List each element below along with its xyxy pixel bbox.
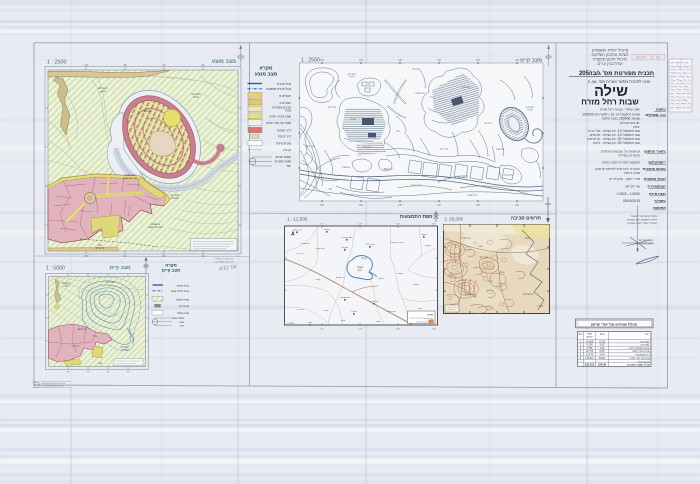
svg-text:יעוד: יעוד — [180, 325, 184, 328]
svg-text:המועצה אזורית מטה בנימין: המועצה אזורית מטה בנימין — [602, 161, 640, 165]
svg-text:שטח חקלאי: שטח חקלאי — [176, 297, 189, 301]
svg-text:עין סאמיה: עין סאמיה — [465, 294, 475, 296]
svg-text:מס': מס' — [579, 333, 583, 336]
svg-text:אל עוג'א: אל עוג'א — [496, 148, 505, 151]
svg-text:גובה: גובה — [179, 321, 184, 324]
svg-text:תורמוס עיא: תורמוס עיא — [523, 294, 534, 296]
svg-text:א-סאוויה: א-סאוויה — [342, 167, 351, 169]
svg-text:האזרחי לאזור יהודה ושומרון: האזרחי לאזור יהודה ושומרון — [627, 221, 657, 225]
svg-text:דיר ג'ריר: דיר ג'ריר — [296, 253, 304, 255]
svg-text:שם/צוות ה:: שם/צוות ה: — [647, 185, 666, 189]
svg-text:תרשים סביבה: תרשים סביבה — [511, 217, 542, 222]
svg-text:רחל: רחל — [358, 268, 363, 272]
svg-text:רימונים: רימונים — [324, 229, 330, 231]
svg-text:1 : 2500: 1 : 2500 — [47, 60, 66, 66]
svg-text:ציבור: ציבור — [284, 109, 291, 113]
svg-text:שטח המגרש: שטח המגרש — [275, 160, 292, 164]
svg-text:יזם/מבקש:: יזם/מבקש: — [648, 161, 666, 165]
svg-text:מזרח: מזרח — [528, 109, 533, 112]
svg-text:מספר שטח: מספר שטח — [172, 317, 184, 320]
svg-text:מרכז מיפוי ישראל מחוז יהודה: מרכז מיפוי ישראל מחוז יהודה — [41, 382, 66, 385]
svg-text:אבו פלאח: אבו פלאח — [77, 328, 87, 331]
svg-text:ל.ת.מ"ח ספ"צ ב.נ: ל.ת.מ"ח ספ"צ ב.נ — [214, 260, 235, 264]
svg-text:עין יברוד: עין יברוד — [296, 309, 304, 311]
svg-text:ג'בל: ג'בל — [93, 335, 97, 338]
svg-text:69.82: 69.82 — [599, 357, 606, 360]
svg-text:דרך קיימת: דרך קיימת — [411, 184, 422, 187]
svg-text:ישוב שילה - שבות רחל מזרח: ישוב שילה - שבות רחל מזרח — [600, 108, 640, 112]
svg-text:נחל שילה: נחל שילה — [503, 174, 512, 177]
svg-text:כפר מאליכ: כפר מאליכ — [315, 247, 324, 250]
svg-text:ועדת בנין ערים: ועדת בנין ערים — [597, 61, 622, 66]
svg-text:בדונם: בדונם — [587, 336, 593, 339]
svg-text:מגורים ב': מגורים ב' — [279, 101, 291, 105]
svg-text:מגורים א': מגורים א' — [279, 94, 291, 98]
svg-text:ג'בל תיא: ג'בל תיא — [328, 106, 336, 109]
svg-text:כוכב השחר: כוכב השחר — [292, 230, 302, 232]
svg-text:מצב מוצע: מצב מוצע — [255, 72, 278, 78]
svg-text:מס': מס' — [656, 56, 661, 60]
svg-text:כפר מאליכ: כפר מאליכ — [461, 237, 472, 240]
svg-text:ג'בל אל: ג'בל אל — [484, 122, 491, 125]
svg-text:אל מוע'יר: אל מוע'יר — [370, 300, 379, 303]
svg-text:אדר' יעקב - אינג'ניריק: אדר' יעקב - אינג'ניריק — [609, 177, 640, 181]
svg-text:139.811: 139.811 — [585, 357, 594, 360]
svg-text:בקעה: בקעה — [63, 285, 69, 288]
svg-text:שטח נוף כפרי פתוח: שטח נוף כפרי פתוח — [630, 357, 650, 360]
svg-text:ראס אדר: ראס אדר — [412, 69, 422, 71]
svg-text:חתימות: חתימות — [653, 206, 666, 210]
svg-text:ג.נ. שטח/ים:: ג.נ. שטח/ים: — [646, 113, 666, 117]
svg-text:מגיש התכנית:: מגיש התכנית: — [643, 167, 666, 171]
svg-text:ג'בל אל עאצור: ג'בל אל עאצור — [147, 225, 163, 229]
svg-text:170: 170 — [84, 64, 89, 67]
svg-text:כביש 458: כביש 458 — [383, 169, 393, 171]
svg-text:ואדי עוג'א: ואדי עוג'א — [305, 146, 315, 148]
svg-text:שבות רחל: שבות רחל — [105, 281, 115, 284]
svg-text:מ.ק.מ.ד"צ מצ"ח: מ.ק.מ.ד"צ מצ"ח — [215, 257, 233, 261]
svg-text:עורך התכנית:: עורך התכנית: — [644, 177, 666, 181]
svg-text:עין סאמיה: עין סאמיה — [301, 243, 310, 245]
svg-text:סינג'יל: סינג'יל — [351, 310, 357, 313]
svg-text:עמיחי: עמיחי — [376, 321, 382, 323]
svg-text:דרך מוצעת: דרך מוצעת — [277, 129, 291, 133]
svg-text:תיק מס': תיק מס' — [636, 56, 647, 60]
svg-text:קוסרה: קוסרה — [397, 272, 403, 275]
svg-text:מטה בנימין: מטה בנימין — [624, 171, 641, 175]
svg-text:שבות רחל מזרח: שבות רחל מזרח — [581, 98, 639, 107]
svg-text:מקרא: מקרא — [427, 314, 433, 317]
svg-text:מצב קיים: מצב קיים — [109, 265, 130, 271]
svg-text:ג'בל עאצור: ג'בל עאצור — [467, 194, 477, 197]
svg-text:תלפית: תלפית — [413, 283, 419, 286]
svg-text:טבלת שטחים של יעודי קרקע: טבלת שטחים של יעודי קרקע — [591, 322, 638, 326]
svg-text:טורמוס עיא: טורמוס עיא — [340, 297, 350, 299]
svg-text:בית ספר: בית ספר — [363, 147, 372, 149]
svg-text:גבול תכנית: גבול תכנית — [277, 82, 292, 86]
svg-text:A: A — [291, 232, 295, 238]
svg-text:עקרבה: עקרבה — [425, 244, 432, 247]
svg-text:מצב קיים: מצב קיים — [162, 268, 181, 273]
svg-text:גבול שיפוט: גבול שיפוט — [424, 317, 433, 320]
svg-text:עטרה: עטרה — [324, 310, 330, 312]
svg-text:עילית: עילית — [193, 95, 199, 99]
svg-text:1:2500 , 1:5000: 1:2500 , 1:5000 — [616, 192, 640, 196]
svg-text:יהודה והשומרון ראש המנהל: יהודה והשומרון ראש המנהל — [627, 218, 657, 222]
svg-text:מג'דל בני פאדל: מג'דל בני פאדל — [390, 241, 404, 244]
svg-text:יעוד: יעוד — [286, 164, 291, 168]
svg-text:1 : 2500: 1 : 2500 — [301, 58, 320, 64]
svg-text:גבול יחידת שטח: גבול יחידת שטח — [171, 289, 190, 293]
svg-text:שילה: שילה — [488, 280, 493, 283]
svg-text:תאור המקום:: תאור המקום: — [644, 150, 666, 154]
svg-text:ואדי אל עוג'א: ואדי אל עוג'א — [123, 176, 138, 180]
svg-text:מעלה אפרים: מעלה אפרים — [342, 236, 354, 239]
svg-text:ג'אלוד: ג'אלוד — [524, 237, 530, 240]
svg-text:מפת התמצאות: מפת התמצאות — [400, 215, 433, 220]
svg-text:קדא: קדא — [98, 362, 103, 365]
svg-text:מצב קיים: מצב קיים — [520, 58, 542, 64]
svg-text:ואדי: ואדי — [328, 189, 332, 191]
svg-text:גוש פיסקאלי 90- עין-סמיא - דרו: גוש פיסקאלי 90- עין-סמיא - דרום — [593, 141, 640, 145]
svg-text:שבות רחל: שבות רחל — [479, 256, 489, 259]
svg-text:מספר מגרש: מספר מגרש — [276, 155, 291, 159]
svg-text:עופרה: עופרה — [307, 322, 313, 324]
svg-text:200.213: 200.213 — [585, 362, 595, 366]
svg-text:מפקד כוחות צה"ל באזור: מפקד כוחות צה"ל באזור — [631, 214, 657, 218]
svg-text:יעוד: יעוד — [645, 333, 649, 336]
svg-text:הכפרים בסיליה: הכפרים בסיליה — [618, 154, 640, 158]
svg-text:שבות: שבות — [350, 119, 356, 121]
svg-text:100.00: 100.00 — [598, 362, 606, 366]
svg-text:ראס תיא: ראס תיא — [462, 87, 471, 89]
svg-text:שילה: שילה — [361, 256, 367, 260]
svg-text:קו בנין: קו בנין — [283, 148, 291, 152]
svg-text:שומא: 150006 באבו פלאח: שומא: 150006 באבו פלאח — [602, 117, 641, 121]
svg-text:אחוז: אחוז — [600, 333, 605, 336]
svg-text:فاعص: فاعص — [100, 89, 108, 93]
svg-text:אבו פלאח: אבו פלאח — [387, 310, 396, 313]
svg-text:170: 170 — [84, 255, 89, 258]
svg-text:עילית: עילית — [349, 76, 355, 79]
svg-text:קנה מידה:: קנה מידה: — [649, 192, 666, 196]
svg-text:1 : 5000: 1 : 5000 — [46, 266, 65, 272]
svg-text:שטח התכנית: שטח התכנית — [416, 322, 428, 324]
svg-text:גבול תכנית: גבול תכנית — [177, 283, 190, 287]
svg-text:מגדלים: מגדלים — [342, 246, 349, 249]
svg-text:אבו פלאח: אבו פלאח — [415, 92, 425, 95]
svg-text:שטח פתוח: שטח פתוח — [177, 312, 189, 315]
svg-text:05/03/2015: 05/03/2015 — [623, 199, 640, 203]
svg-text:ואדי רחל: ואדי רחל — [440, 148, 449, 151]
svg-text:ראס אדר: ראס אדר — [142, 110, 153, 113]
svg-text:קצרה: קצרה — [316, 278, 321, 281]
svg-text:סה"כ שטח התכנית: סה"כ שטח התכנית — [627, 362, 649, 366]
svg-text:שטח בנוי: שטח בנוי — [179, 305, 189, 308]
svg-text:מגרש מיוחד: מגרש מיוחד — [276, 142, 291, 146]
svg-text:מע'יר: מע'יר — [478, 246, 483, 248]
svg-text:ג'אלוד: ג'אלוד — [378, 277, 383, 280]
svg-text:קריות: קריות — [499, 271, 505, 274]
svg-text:תאריך:: תאריך: — [654, 199, 666, 203]
svg-text:תחתית: תחתית — [122, 350, 129, 352]
svg-text:מקום:: מקום: — [656, 108, 666, 112]
svg-text:תחתית: תחתית — [171, 197, 179, 200]
svg-text:שילה: שילה — [341, 319, 346, 322]
svg-text:א-כפיר: א-כפיר — [72, 346, 79, 348]
svg-text:סינג'יל: סינג'יל — [537, 305, 543, 308]
svg-text:תכנית מפורטת מס' ג/בו/205: תכנית מפורטת מס' ג/בו/205 — [579, 71, 654, 77]
svg-text:שטח נוף כפרי פתוח: שטח נוף כפרי פתוח — [266, 121, 292, 125]
svg-text:1 : 12,500: 1 : 12,500 — [287, 217, 308, 222]
svg-text:שטח ציבורי פתוח: שטח ציבורי פתוח — [269, 114, 292, 118]
svg-text:שרי 14 24: שרי 14 24 — [625, 185, 640, 189]
svg-text:1:12500: 1:12500 — [287, 323, 296, 325]
svg-text:גבעה 777: גבעה 777 — [366, 244, 375, 246]
svg-text:מצב מוצע: מצב מוצע — [212, 59, 236, 65]
svg-text:איתמר: איתמר — [421, 234, 427, 236]
svg-text:גבול תכנית מאושרת: גבול תכנית מאושרת — [266, 87, 292, 91]
svg-text:דרך קיימת: דרך קיימת — [278, 135, 291, 139]
svg-text:ע. עינתים: ע. עינתים — [336, 277, 345, 279]
svg-text:1: 25,000: 1: 25,000 — [444, 217, 464, 222]
svg-text:קד-עליא: קד-עליא — [95, 246, 104, 250]
svg-text:סא"ל אברהם: סא"ל אברהם — [639, 238, 654, 242]
